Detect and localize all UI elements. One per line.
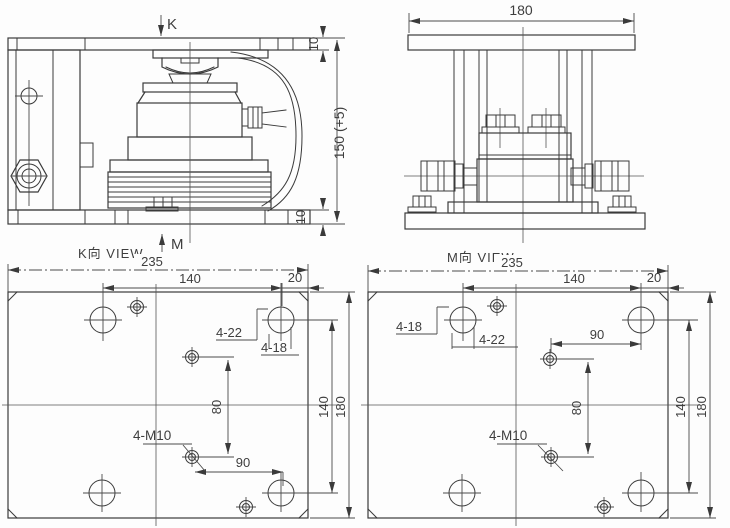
svg-text:140: 140: [563, 271, 585, 286]
k-dim-90: 90: [195, 455, 283, 486]
m-dim-90: 90: [551, 327, 641, 352]
m-view: M向 VIEW 235 140 20: [361, 250, 716, 526]
dim-overall-height: 150 (+5): [331, 40, 347, 222]
svg-text:10: 10: [306, 37, 321, 51]
k-view-caption: K向 VIEW: [78, 246, 144, 261]
m-dim-140v: 140: [673, 320, 689, 493]
front-top-plate: [408, 35, 635, 50]
view-arrow-k-label: K: [167, 16, 177, 33]
svg-text:235: 235: [501, 255, 523, 270]
svg-text:140: 140: [179, 271, 201, 286]
svg-text:80: 80: [569, 401, 584, 415]
k-dim-80: 80: [199, 357, 234, 457]
front-top-bolts: [482, 108, 565, 148]
side-view: K M 10 10 150 (+5): [8, 15, 347, 253]
side-top-plate: [8, 38, 310, 50]
svg-text:180: 180: [333, 396, 348, 418]
engineering-drawing-page: K M 10 10 150 (+5) 180: [0, 0, 730, 528]
svg-text:150 (+5): 150 (+5): [331, 107, 347, 160]
dim-front-width: 180: [409, 2, 634, 33]
m-dim-235: 235: [368, 255, 668, 292]
svg-text:180: 180: [509, 2, 533, 18]
svg-text:235: 235: [141, 254, 163, 269]
k-dim-140v: 140: [316, 320, 332, 493]
front-base-bolts: [408, 196, 636, 212]
k-label-4-18: 4-18: [261, 327, 299, 355]
svg-text:4-22: 4-22: [216, 325, 242, 340]
svg-text:10: 10: [293, 210, 308, 224]
cable-gland: [242, 107, 286, 128]
k-dim-235: 235: [8, 254, 308, 292]
k-label-4-22: 4-22: [216, 309, 268, 340]
svg-text:4-22: 4-22: [479, 332, 505, 347]
k-label-4-m10: 4-M10: [133, 428, 205, 471]
m-large-holes: [443, 283, 698, 512]
front-bottom-plate: [405, 213, 645, 229]
front-view: 180: [404, 2, 645, 243]
view-arrow-m-label: M: [171, 236, 184, 253]
m-label-4-m10: 4-M10: [489, 428, 563, 471]
k-view: K向 VIEW 235 140 20: [2, 246, 355, 526]
load-cell-module-drawing: K M 10 10 150 (+5) 180: [0, 0, 730, 528]
m-label-4-18: 4-18: [396, 307, 449, 334]
svg-text:4-M10: 4-M10: [133, 428, 171, 443]
side-load-cell: [108, 50, 302, 211]
svg-text:4-18: 4-18: [261, 340, 287, 355]
svg-text:80: 80: [209, 400, 224, 414]
svg-text:90: 90: [590, 327, 604, 342]
k-large-holes: [83, 283, 338, 512]
m-dim-80: 80: [558, 359, 594, 457]
svg-text:20: 20: [288, 270, 302, 285]
svg-text:180: 180: [694, 396, 709, 418]
svg-text:90: 90: [236, 455, 250, 470]
m-label-4-22: 4-22: [452, 327, 518, 349]
m-dim-140-20: 140 20: [463, 270, 684, 288]
svg-text:4-M10: 4-M10: [489, 428, 527, 443]
svg-text:140: 140: [673, 396, 688, 418]
side-left-bracket: [8, 50, 93, 210]
svg-text:4-18: 4-18: [396, 319, 422, 334]
dim-plate-thickness-top: 10: [306, 27, 345, 61]
svg-text:20: 20: [647, 270, 661, 285]
svg-text:140: 140: [316, 396, 331, 418]
